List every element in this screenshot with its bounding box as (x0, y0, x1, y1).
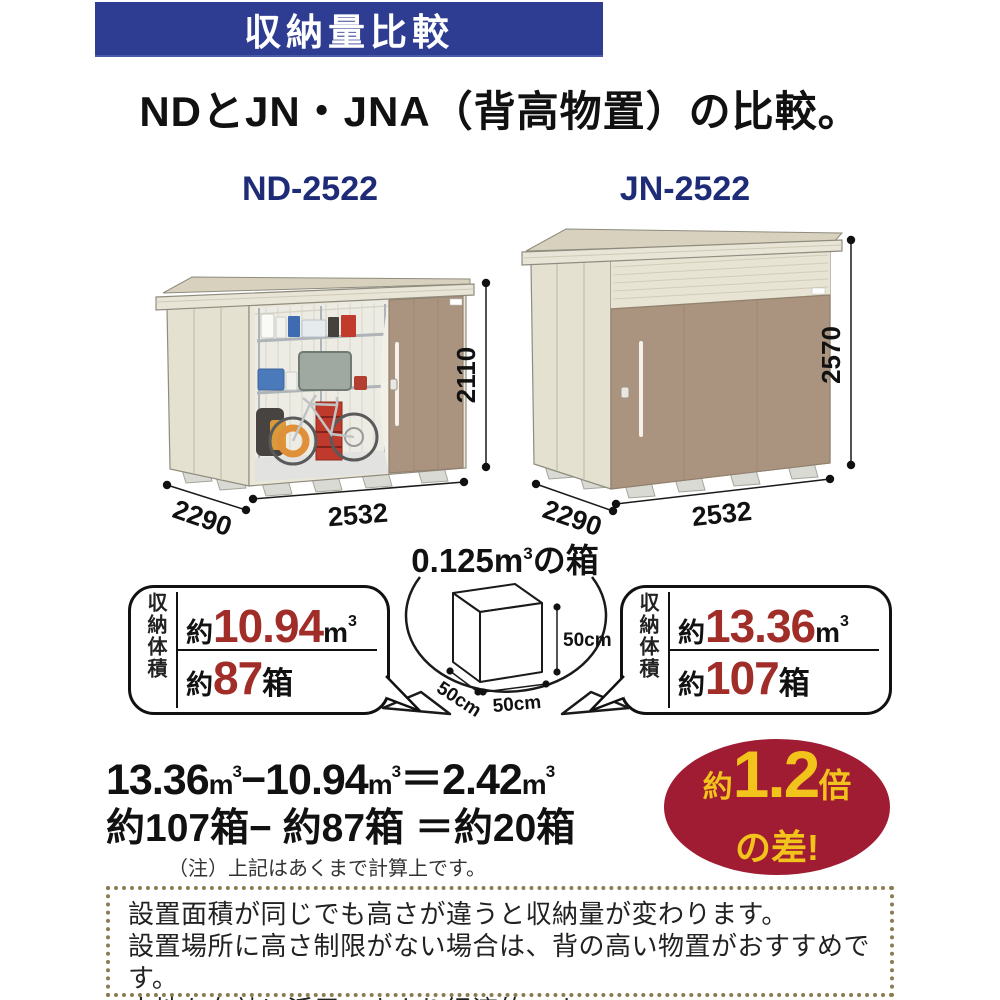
header-banner: 収納量比較 (95, 2, 603, 57)
nd-brand-tag (450, 299, 462, 305)
volume-row-m3-nd: 約10.94m3 (178, 594, 381, 649)
cube-drawing (453, 584, 542, 682)
page-subtitle: NDとJN・JNA（背高物置）の比較。 (0, 78, 1000, 139)
footer-note-box: 設置面積が同じでも高さが違うと収納量が変わります。 設置場所に高さ制限がない場合… (106, 886, 894, 997)
shed-illustrations: 2110 2532 2290 (140, 225, 900, 535)
calculation-note: （注）上記はあくまで計算上です。 (168, 852, 486, 881)
footer-line: 設置面積が同じでも高さが違うと収納量が変わります。 (128, 898, 890, 930)
jn-shed-side-wall (531, 259, 611, 489)
cube-dim-width: 50cm (492, 692, 542, 717)
nd-height-dimension: 2110 (451, 347, 481, 403)
nd-door-lock (390, 379, 397, 390)
model-label-nd: ND-2522 (200, 170, 420, 209)
model-label-jn: JN-2522 (575, 170, 795, 209)
badge-line1: 約1.2倍 (703, 744, 852, 823)
nd-shed-illustration: 2110 2532 2290 (156, 277, 490, 535)
volume-box-jn: 収納体積 約13.36m3 約107箱 (620, 585, 892, 715)
jn-brand-tag (812, 288, 825, 294)
jn-door-lock (621, 387, 629, 398)
footer-line: 設置場所に高さ制限がない場合は、背の高い物置がおすすめです。 (128, 930, 890, 994)
jn-shed-illustration: 2570 2532 2290 (522, 229, 855, 535)
difference-badge: 約1.2倍 の差! (664, 739, 890, 875)
nd-shed-interior (255, 298, 391, 484)
jn-door-handle (639, 341, 643, 437)
equation-boxes: 約107箱− 約87箱 ＝約20箱 (106, 797, 575, 853)
volume-label-nd: 収納体積 (141, 592, 170, 708)
cube-diagram: 50cm 50cm 50cm (360, 565, 650, 750)
cube-title-sup: 3 (523, 544, 532, 563)
volume-row-boxes-nd: 約87箱 (178, 651, 381, 706)
volume-row-m3-jn: 約13.36m3 (670, 594, 883, 649)
jn-height-dimension: 2570 (816, 326, 846, 384)
cube-dim-height: 50cm (563, 630, 612, 651)
badge-line2: の差! (735, 819, 819, 871)
jn-width-dimension: 2532 (690, 496, 753, 532)
banner-title: 収納量比較 (244, 2, 454, 56)
nd-width-dimension: 2532 (327, 498, 389, 533)
footer-line: 土地を有効に活用できより経済的です。 (128, 994, 890, 1000)
nd-depth-dimension: 2290 (169, 494, 236, 535)
storage-comparison-infographic: 収納量比較 NDとJN・JNA（背高物置）の比較。 ND-2522 JN-252… (0, 0, 1000, 1000)
nd-shed-side-wall (167, 303, 249, 486)
volume-box-nd: 収納体積 約10.94m3 約87箱 (128, 585, 390, 715)
volume-row-boxes-jn: 約107箱 (670, 651, 883, 706)
cube-dim-depth: 50cm (433, 678, 485, 722)
jn-shed-doors (611, 295, 830, 489)
jn-depth-dimension: 2290 (539, 494, 606, 535)
